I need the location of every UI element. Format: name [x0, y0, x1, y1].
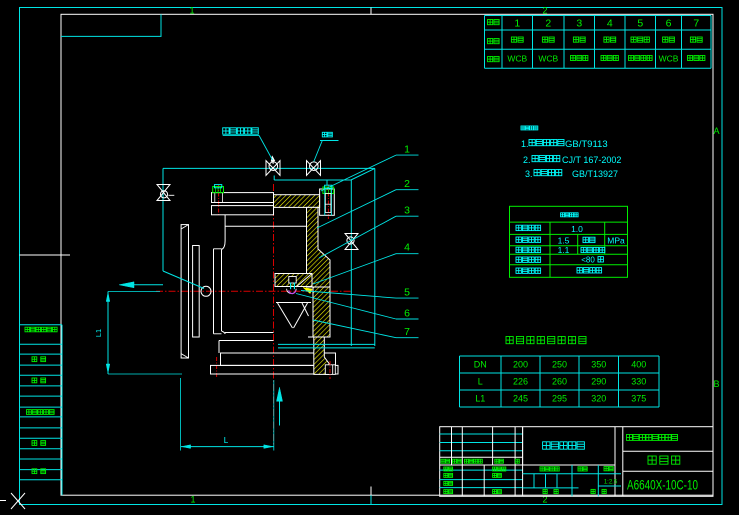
- svg-text:L1: L1: [94, 329, 103, 337]
- svg-text:WCB: WCB: [659, 54, 679, 64]
- svg-text:226: 226: [513, 377, 528, 387]
- svg-text:GB/T13927: GB/T13927: [572, 169, 618, 179]
- svg-text:1: 1: [190, 495, 195, 505]
- svg-text:3.: 3.: [525, 169, 533, 179]
- svg-text:3: 3: [576, 18, 582, 30]
- svg-text:295: 295: [552, 394, 567, 404]
- svg-text:WCB: WCB: [507, 54, 527, 64]
- svg-text:2.: 2.: [523, 155, 531, 165]
- svg-text:WCB: WCB: [538, 54, 558, 64]
- svg-text:L1: L1: [475, 394, 485, 404]
- svg-text:330: 330: [631, 377, 646, 387]
- svg-text:1.1: 1.1: [558, 245, 570, 255]
- svg-text:DN: DN: [474, 360, 487, 370]
- svg-text:400: 400: [631, 360, 646, 370]
- svg-text:L: L: [478, 377, 483, 387]
- svg-text:2: 2: [542, 6, 547, 16]
- svg-text:320: 320: [591, 394, 606, 404]
- svg-text:200: 200: [513, 360, 528, 370]
- svg-text:260: 260: [552, 377, 567, 387]
- svg-text:6: 6: [666, 18, 672, 30]
- svg-text:B: B: [713, 379, 719, 389]
- svg-text:350: 350: [591, 360, 606, 370]
- svg-text:3: 3: [404, 205, 410, 217]
- svg-text:1.: 1.: [521, 139, 529, 149]
- svg-text:250: 250: [552, 360, 567, 370]
- svg-text:1: 1: [514, 18, 520, 30]
- svg-text:MPa: MPa: [607, 236, 625, 246]
- svg-text:1: 1: [404, 144, 410, 156]
- svg-text:A6640X-10C-10: A6640X-10C-10: [627, 477, 698, 493]
- svg-text:4: 4: [607, 18, 613, 30]
- svg-text:6: 6: [404, 308, 410, 320]
- svg-text:7: 7: [693, 18, 699, 30]
- svg-text:5: 5: [404, 287, 410, 299]
- svg-text:290: 290: [591, 377, 606, 387]
- svg-text:245: 245: [513, 394, 528, 404]
- svg-text:7: 7: [404, 326, 410, 338]
- svg-text:375: 375: [631, 394, 646, 404]
- svg-text:1.5: 1.5: [558, 236, 570, 246]
- svg-text:5: 5: [637, 18, 643, 30]
- svg-text:1.0: 1.0: [571, 224, 583, 234]
- svg-text:2: 2: [404, 178, 410, 190]
- svg-text:CJ/T 167-2002: CJ/T 167-2002: [562, 155, 621, 165]
- svg-text:GB/T9113: GB/T9113: [565, 139, 608, 150]
- svg-text:L: L: [224, 436, 229, 445]
- svg-text:1: 1: [189, 6, 194, 16]
- svg-text:4: 4: [404, 242, 410, 254]
- svg-text:<80: <80: [581, 256, 595, 265]
- svg-text:1:2.5: 1:2.5: [604, 480, 618, 486]
- svg-text:A: A: [713, 126, 719, 136]
- svg-text:2: 2: [545, 18, 551, 30]
